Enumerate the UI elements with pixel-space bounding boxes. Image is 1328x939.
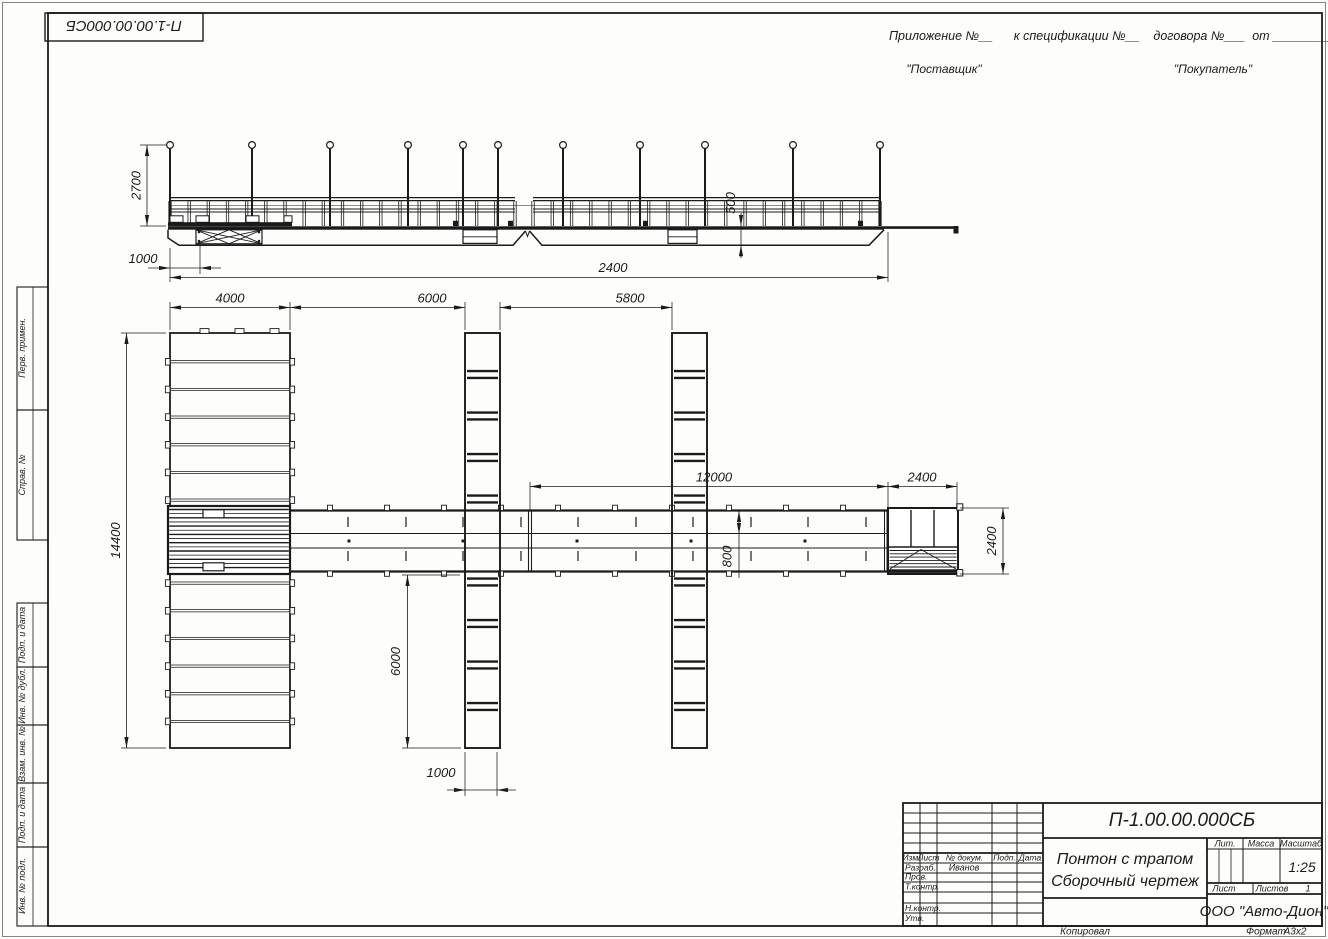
tb-masshtab-label: Масштаб — [1280, 839, 1323, 849]
margin-perv-primen: Перв. примен. — [17, 318, 27, 378]
deck-fitting — [643, 221, 648, 226]
walkway-cleat — [385, 505, 390, 510]
tb-col-doc: № докум. — [946, 853, 983, 863]
deck-bracket — [284, 216, 292, 223]
tb-massa-label: Масса — [1248, 839, 1275, 849]
walkway-center-fitting — [804, 540, 807, 543]
tb-title-line1: Понтон с трапом — [1057, 851, 1194, 868]
margin-podp-data-1: Подп. и дата — [17, 607, 27, 663]
dim-elev-post-height: 2700 — [129, 170, 144, 201]
deck-bracket — [246, 216, 259, 223]
dim-plan-pontoon-width: 4000 — [216, 291, 246, 306]
pontoon-tab — [290, 469, 295, 476]
pontoon-tab — [165, 497, 170, 504]
dim-plan-gap1: 6000 — [418, 291, 448, 306]
tb-lit-label: Лит. — [1213, 839, 1235, 849]
pontoon-tab — [165, 441, 170, 448]
pontoon-tab — [290, 635, 295, 642]
footer-format-label: Формат — [1246, 927, 1286, 938]
tb-designation: П-1.00.00.000СБ — [1109, 810, 1256, 831]
scissor-pin — [258, 231, 261, 234]
margin-vzam-inv: Взам. инв. № — [17, 726, 27, 782]
dim-plan-overall-width: 14400 — [108, 522, 123, 559]
ramp-handle — [203, 510, 224, 518]
walkway-cleat — [841, 505, 846, 510]
walkway-center-fitting — [462, 540, 465, 543]
mooring-post-top — [405, 142, 412, 149]
walkway-cleat — [784, 571, 789, 576]
scissor-pin — [258, 240, 261, 243]
pontoon-tab — [290, 441, 295, 448]
deck-bracket — [196, 216, 209, 223]
mooring-post-top — [249, 142, 256, 149]
dim-plan-gangway-len: 2400 — [907, 470, 938, 485]
margin-inv-podl: Инв. № подл. — [17, 858, 27, 914]
margin-sprav-no: Справ. № — [17, 454, 27, 495]
walkway-center-fitting — [576, 540, 579, 543]
tb-row-nkontr: Н.контр. — [905, 903, 941, 913]
pontoon-tab — [165, 469, 170, 476]
paper-background — [0, 0, 1328, 939]
assembly-drawing: П-1.00.00.000СБ Приложение №__ к специфи… — [0, 0, 1328, 939]
footer-format-value: А3х2 — [1283, 927, 1307, 938]
gangway-end-band — [889, 569, 957, 573]
pontoon-tab — [165, 580, 170, 587]
tb-col-podp: Подп. — [993, 853, 1016, 863]
mooring-post-top — [790, 142, 797, 149]
walkway-cleat — [784, 505, 789, 510]
mooring-post-top — [327, 142, 334, 149]
pontoon-tab — [290, 358, 295, 365]
mooring-post-top — [167, 142, 174, 149]
dim-plan-finger-length: 6000 — [388, 646, 403, 676]
walkway-cleat — [613, 571, 618, 576]
walkway-cleat — [556, 505, 561, 510]
tb-col-data: Дата — [1018, 853, 1042, 863]
mooring-post-top — [460, 142, 467, 149]
gangway-corner-tab — [957, 504, 963, 510]
pontoon-tab — [290, 690, 295, 697]
mooring-post-top — [702, 142, 709, 149]
walkway-cleat — [442, 571, 447, 576]
dim-plan-gangway-width: 2400 — [984, 526, 999, 557]
walkway-cleat — [385, 571, 390, 576]
pontoon-tab — [165, 607, 170, 614]
pontoon-top-tab — [235, 329, 244, 334]
walkway-center-fitting — [690, 540, 693, 543]
walkway-cleat — [727, 505, 732, 510]
pontoon-top-tab — [200, 329, 209, 334]
pontoon-tab — [290, 718, 295, 725]
margin-podp-data-2: Подп. и дата — [17, 787, 27, 843]
walkway-cleat — [442, 505, 447, 510]
tb-row-utv: Утв. — [904, 913, 924, 923]
pontoon-tab — [290, 580, 295, 587]
dim-plan-gap2: 5800 — [616, 291, 646, 306]
tb-title-line2: Сборочный чертеж — [1051, 873, 1200, 890]
mooring-post-top — [495, 142, 502, 149]
pontoon-tab — [290, 497, 295, 504]
mooring-post-top — [877, 142, 884, 149]
corner-stamp-designation: П-1.00.00.000СБ — [66, 17, 182, 34]
buyer-label: "Покупатель" — [1174, 62, 1253, 76]
dim-plan-walk-width: 800 — [720, 545, 735, 567]
deck-fitting — [453, 221, 458, 226]
tb-company: ООО "Авто-Дион" — [1200, 903, 1328, 920]
pontoon-tab — [165, 635, 170, 642]
pontoon-tab — [290, 414, 295, 421]
walkway-cleat — [328, 505, 333, 510]
tb-sheets-value: 1 — [1305, 884, 1310, 894]
pontoon-tab — [165, 386, 170, 393]
ramp-handle — [203, 563, 224, 571]
pontoon-tab — [290, 607, 295, 614]
pontoon-tab — [290, 386, 295, 393]
walkway-center-fitting — [348, 540, 351, 543]
pontoon-tab — [165, 663, 170, 670]
gangway-end-fitting — [954, 226, 959, 234]
appendix-line: Приложение №__ к спецификации №__ догово… — [889, 29, 1328, 43]
tb-developer-name: Иванов — [949, 863, 980, 873]
gangway-corner-tab — [957, 570, 963, 576]
pontoon-top-tab — [270, 329, 279, 334]
scissor-pin — [198, 240, 201, 243]
drawing-sheet: П-1.00.00.000СБ Приложение №__ к специфи… — [0, 0, 1328, 939]
walkway-cleat — [556, 571, 561, 576]
dim-plan-finger-width: 1000 — [427, 765, 457, 780]
pontoon-tab — [290, 663, 295, 670]
tb-sheet-label: Лист — [1211, 884, 1236, 894]
deck-fitting — [858, 221, 863, 226]
deck-band — [168, 226, 884, 229]
pontoon-tab — [165, 718, 170, 725]
pontoon-tab — [165, 414, 170, 421]
dim-elev-ramp-offset: 1000 — [129, 251, 159, 266]
tb-col-list: Лист — [917, 853, 940, 863]
walkway-cleat — [328, 571, 333, 576]
stowed-ramp-band — [168, 222, 292, 226]
deck-fitting — [508, 221, 513, 226]
tb-scale-value: 1:25 — [1288, 859, 1315, 875]
pontoon-tab — [165, 358, 170, 365]
supplier-label: "Поставщик" — [906, 62, 982, 76]
mooring-post-top — [560, 142, 567, 149]
walkway-cleat — [727, 571, 732, 576]
walkway-cleat — [613, 505, 618, 510]
dim-plan-walkway-run: 12000 — [696, 470, 733, 485]
tb-row-tkontr: Т.контр. — [905, 882, 939, 892]
dim-elev-hull-height: 500 — [723, 191, 738, 213]
margin-inv-dubl: Инв. № дубл. — [17, 668, 27, 723]
footer-copied: Копировал — [1060, 927, 1110, 938]
dim-elev-overall: 2400 — [598, 260, 629, 275]
scissor-pin — [198, 231, 201, 234]
deck-bracket — [170, 216, 183, 223]
tb-sheets-label: Листов — [1255, 884, 1289, 894]
walkway-cleat — [841, 571, 846, 576]
mooring-post-top — [637, 142, 644, 149]
pontoon-tab — [165, 690, 170, 697]
tb-row-prov: Пров. — [905, 872, 927, 882]
